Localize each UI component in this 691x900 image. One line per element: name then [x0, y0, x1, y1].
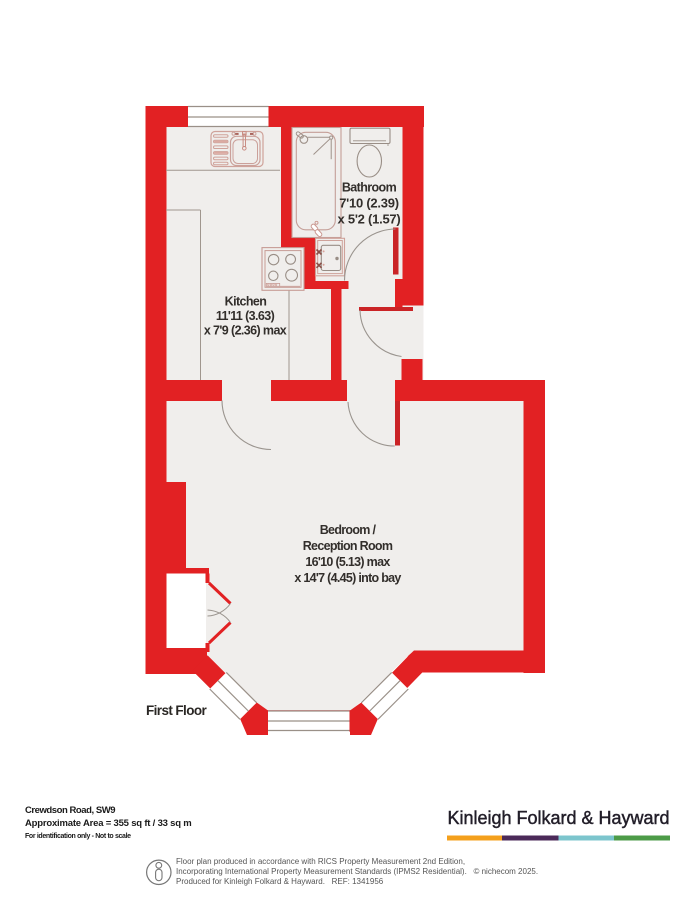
svg-text:7'10 (2.39): 7'10 (2.39): [339, 196, 399, 211]
svg-text:Incorporating International Pr: Incorporating International Property Mea…: [176, 867, 538, 876]
svg-text:Bathroom: Bathroom: [342, 181, 397, 195]
svg-text:Produced for Kinleigh Folkard: Produced for Kinleigh Folkard & Hayward.…: [176, 877, 384, 886]
svg-text:x 5'2 (1.57): x 5'2 (1.57): [338, 212, 401, 227]
svg-text:x 7'9 (2.36) max: x 7'9 (2.36) max: [204, 324, 287, 338]
svg-text:Kitchen: Kitchen: [225, 295, 267, 309]
svg-text:Reception Room: Reception Room: [303, 539, 393, 553]
svg-text:Bedroom /: Bedroom /: [320, 523, 377, 537]
svg-text:11'11 (3.63): 11'11 (3.63): [216, 309, 275, 323]
svg-text:Approximate Area = 355 sq ft /: Approximate Area = 355 sq ft / 33 sq m: [25, 818, 192, 829]
svg-text:For identification only - Not: For identification only - Not to scale: [25, 833, 131, 840]
svg-text:Floor plan produced in accorda: Floor plan produced in accordance with R…: [176, 857, 465, 866]
svg-text:x 14'7 (4.45) into bay: x 14'7 (4.45) into bay: [294, 571, 401, 585]
svg-text:First Floor: First Floor: [146, 703, 207, 718]
svg-text:16'10 (5.13) max: 16'10 (5.13) max: [305, 555, 390, 569]
svg-text:Crewdson Road, SW9: Crewdson Road, SW9: [25, 805, 115, 816]
svg-text:Kinleigh Folkard & Hayward: Kinleigh Folkard & Hayward: [447, 808, 669, 828]
